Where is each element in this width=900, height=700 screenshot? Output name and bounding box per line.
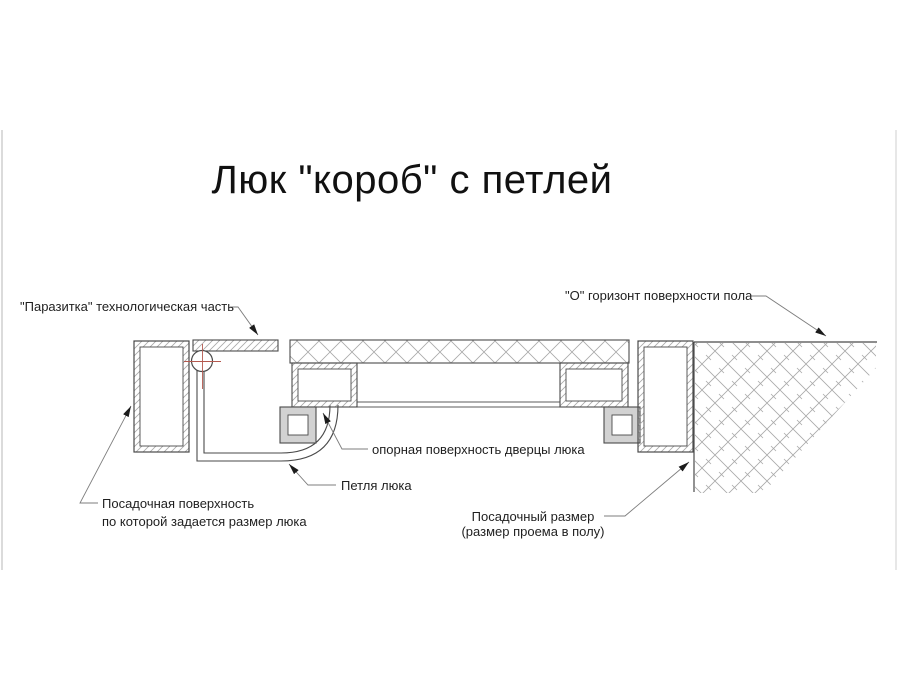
parasitka-bar bbox=[193, 340, 278, 351]
seal-square-right bbox=[604, 407, 640, 443]
door-right-profile bbox=[560, 363, 628, 407]
leader-hinge bbox=[289, 464, 336, 485]
label-hinge: Петля люка bbox=[341, 478, 412, 493]
leader-parasitka bbox=[230, 307, 258, 335]
seal-square-left bbox=[280, 407, 316, 443]
frame-left-profile bbox=[134, 341, 189, 452]
hatch-door bbox=[290, 340, 629, 407]
door-top-panel bbox=[290, 340, 629, 363]
label-seating-surface-line2: по которой задается размер люка bbox=[102, 514, 307, 529]
leader-seating-size bbox=[604, 462, 689, 516]
hinge-pivot bbox=[192, 351, 213, 372]
label-floor-horizon: "О" горизонт поверхности пола bbox=[565, 288, 753, 303]
drawing-page: Люк "короб" с петлей bbox=[0, 0, 900, 700]
label-seating-size-line1: Посадочный размер bbox=[472, 509, 595, 524]
door-bottom-sheet bbox=[357, 402, 560, 407]
technical-drawing-canvas: "Паразитка" технологическая часть "О" го… bbox=[0, 0, 900, 700]
leader-seating-surface bbox=[80, 406, 131, 503]
label-door-support-surface: опорная поверхность дверцы люка bbox=[372, 442, 585, 457]
label-seating-surface-line1: Посадочная поверхность bbox=[102, 496, 254, 511]
leader-door-support bbox=[323, 413, 368, 449]
leader-floor-horizon bbox=[750, 296, 826, 336]
door-left-profile bbox=[292, 363, 357, 407]
label-parasitka: "Паразитка" технологическая часть bbox=[20, 299, 234, 314]
floor-hatch-area bbox=[695, 343, 876, 493]
label-seating-size-line2: (размер проема в полу) bbox=[461, 524, 604, 539]
frame-right-profile bbox=[638, 341, 693, 452]
floor-slab bbox=[694, 342, 877, 493]
